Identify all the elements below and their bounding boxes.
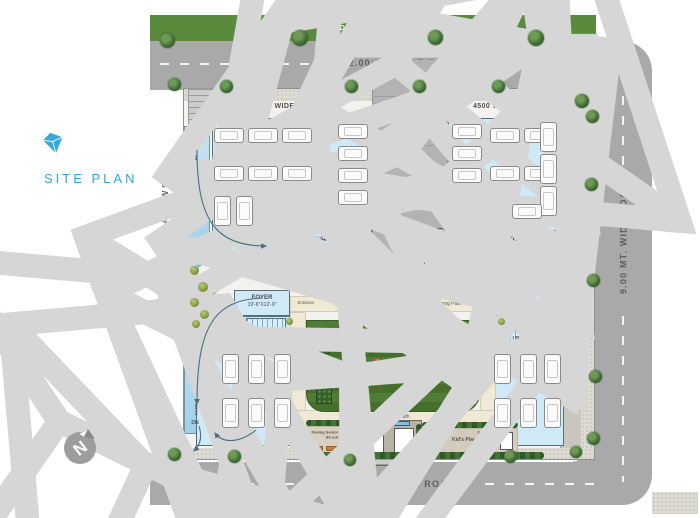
hedge-side-right [416,424,422,454]
tree [587,432,600,445]
tree [585,178,598,191]
car [544,398,561,428]
car [490,166,520,181]
lift-box: LIFT [222,320,238,332]
jogging-path-label: Jogging Path [328,301,370,308]
car [512,204,542,219]
jogging-path-label-bottom: Jogging Path [370,414,420,422]
tree [586,110,599,123]
hedge-top-left [306,420,356,426]
car [282,166,312,181]
lift-box: LIFT [542,320,558,332]
jogging-path-label-left: Jogging Path [294,343,302,393]
lift-box: LIFT [450,196,467,209]
indoor-game-right-name: FOYER / INDOOR GAME [446,236,562,244]
car [520,354,537,384]
car [214,128,244,143]
central-road-stripes [374,96,446,152]
car [338,124,368,139]
car [236,196,253,226]
north-arrow: N [64,429,96,464]
car [274,354,291,384]
tree [575,94,589,108]
pavilion-room-left [364,428,384,454]
car [494,354,511,384]
senior-bench [310,446,323,451]
tree [428,30,443,45]
dn-label: DN [282,251,296,258]
site-plan-title: SITE PLAN [44,172,137,187]
foyer-lower-right-name: FOYER [490,294,554,302]
entrance-label: Entrance [472,431,499,437]
jogging-path-label: Jogging Path [426,301,468,308]
entrance-label: Entrance [292,301,319,307]
entrance-label: Entrance [466,303,493,309]
senior-sitout-label: Paving Senior Citizen Sit out [310,430,353,441]
car [214,166,244,181]
bush [190,298,199,307]
car [282,128,312,143]
planter-box [452,338,468,354]
site-plan-canvas: AUDA Lake and Garden 12.00 MT. WIDE ROAD… [0,0,700,518]
tree [528,30,544,46]
tree [589,370,602,383]
tree [345,80,358,93]
lift-box: LIFT [312,196,329,209]
gym-dim: 51'-0"X15'-6" [352,270,498,277]
planter-box [316,388,332,404]
tree [587,274,600,287]
car [544,354,561,384]
tree [228,450,241,463]
car [248,128,278,143]
planter-box [314,338,330,354]
jogging-path-label-right: Jogging Path [484,343,492,393]
car [338,190,368,205]
letter-box-left: LETTER BOX [326,228,352,236]
car [540,186,557,216]
up-label: UP [496,226,516,233]
foyer-lower-right-dim: 19'-4"X10'-0" [490,302,554,309]
garden-label: GARDEN [358,372,428,382]
bush [498,318,505,325]
bush [200,310,209,319]
car [274,398,291,428]
ramp-dn-label: DN [188,420,202,427]
internal-road-label-right: 4500 WIDE ROAD [440,101,570,112]
internal-road-label-4000: 4000 WIDE ROAD [567,255,576,355]
entrance-label: Entrance [282,431,309,437]
up-label: UP [508,336,524,343]
letter-box-right: LETTER BOX [426,228,452,236]
corner-paving [652,492,698,514]
up-label: UP [256,330,272,337]
foyer-core-lower-left-label: FOYER [226,334,256,341]
car [540,154,557,184]
indoor-game-left-name: FOYER / INDOOR GAME [240,236,356,244]
planter-box [450,388,466,404]
car [520,398,537,428]
right-road-label: 9.00 MT. WIDE ROAD [617,169,630,309]
tree [168,78,181,91]
car [248,166,278,181]
car [452,168,482,183]
bottom-road-label: 9.00 MT. WIDE ROAD [325,477,475,490]
logo-gem [42,132,63,154]
stairs-mid-left [296,252,324,290]
car [338,168,368,183]
car [540,122,557,152]
car [338,146,368,161]
car [222,398,239,428]
tree [344,454,356,466]
svg-text:N: N [70,437,91,460]
lift-box: LIFT [450,214,467,227]
car [248,398,265,428]
kids-play-label: Kid's Play Area [428,437,512,445]
indoor-game-right-dim: 17'-3"X23'-0" [446,244,562,251]
tree [504,450,517,463]
bush [198,282,208,292]
internal-road-label-left: 4500 WIDE ROAD [222,101,352,112]
car [490,128,520,143]
car [214,196,231,226]
car [248,354,265,384]
foyer-lower-left-name: FOYER [234,294,290,302]
dn-label: DN [482,251,496,258]
letter-box-right-label: LETTER BOX [432,228,446,235]
gym-name: GYM / MULTIPURPOSE HALL [352,262,498,270]
car [494,398,511,428]
senior-bench [326,446,339,451]
bansari-bungalows-label: BANSARI BUNGALOWS [159,180,173,320]
bush [192,320,200,328]
auda-garden-label: AUDA Lake and Garden [329,25,418,32]
tree [570,446,582,458]
tree [413,80,426,93]
ramp-out-label: RAMP OUT GROUND FLOOR TO BASEMENT [193,321,200,425]
pavilion-room-right [394,428,414,454]
ramp-in-label: RAMP IN GROUND FLOOR TO BASEMENT [193,135,200,239]
tree [492,80,505,93]
indoor-game-left-dim: 21'-6"X23'-0" [240,244,356,251]
lift-box: LIFT [312,214,329,227]
up-label: UP [268,226,288,233]
foyer-core-lower-right-label: FOYER [508,326,538,333]
bush [286,318,293,325]
tree [220,80,233,93]
internal-central-road [372,60,448,252]
car [222,354,239,384]
car [452,124,482,139]
foyer-lower-left-dim: 19'-6"X12'-9" [234,302,290,309]
tree [292,30,308,46]
bush [190,266,199,275]
tree [168,448,181,461]
letter-box-left-label: LETTER BOX [332,228,346,235]
tree [160,33,175,48]
internal-road-label-central: 4500 WIDE ROAD [387,162,397,252]
entrance-label: Entrance [384,297,411,303]
pavilion-steps [372,458,406,465]
car [452,146,482,161]
